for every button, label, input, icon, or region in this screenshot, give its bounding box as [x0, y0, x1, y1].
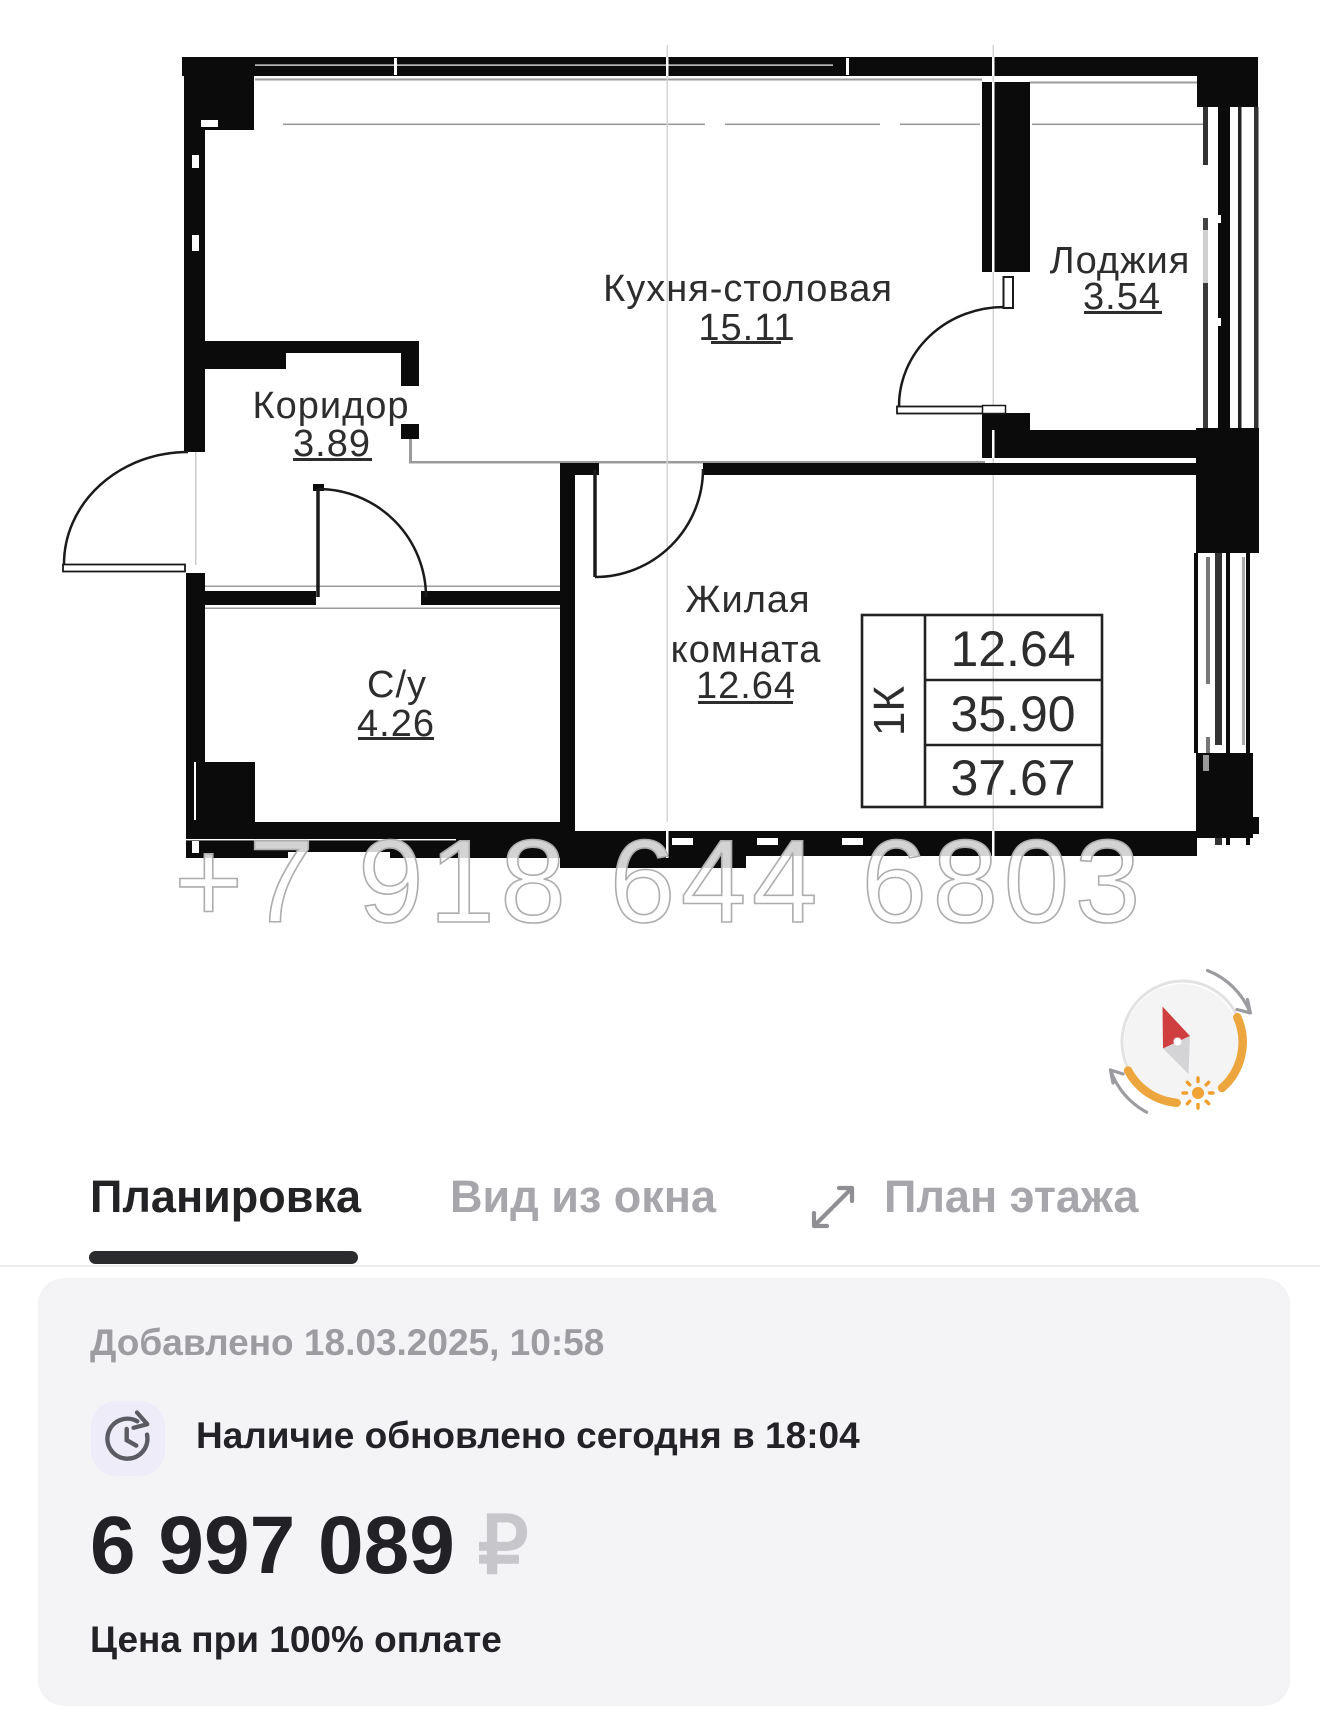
svg-text:С/у: С/у	[367, 664, 427, 706]
svg-text:12.64: 12.64	[950, 621, 1075, 677]
svg-text:Коридор: Коридор	[252, 385, 409, 427]
svg-text:+7 918 644 6803: +7 918 644 6803	[174, 816, 1146, 948]
svg-text:35.90: 35.90	[950, 686, 1075, 742]
svg-text:12.64: 12.64	[696, 665, 796, 707]
svg-text:1К: 1К	[865, 686, 914, 736]
svg-text:Жилая: Жилая	[685, 579, 810, 621]
svg-text:37.67: 37.67	[950, 750, 1075, 806]
svg-text:Кухня-столовая: Кухня-столовая	[603, 268, 893, 310]
